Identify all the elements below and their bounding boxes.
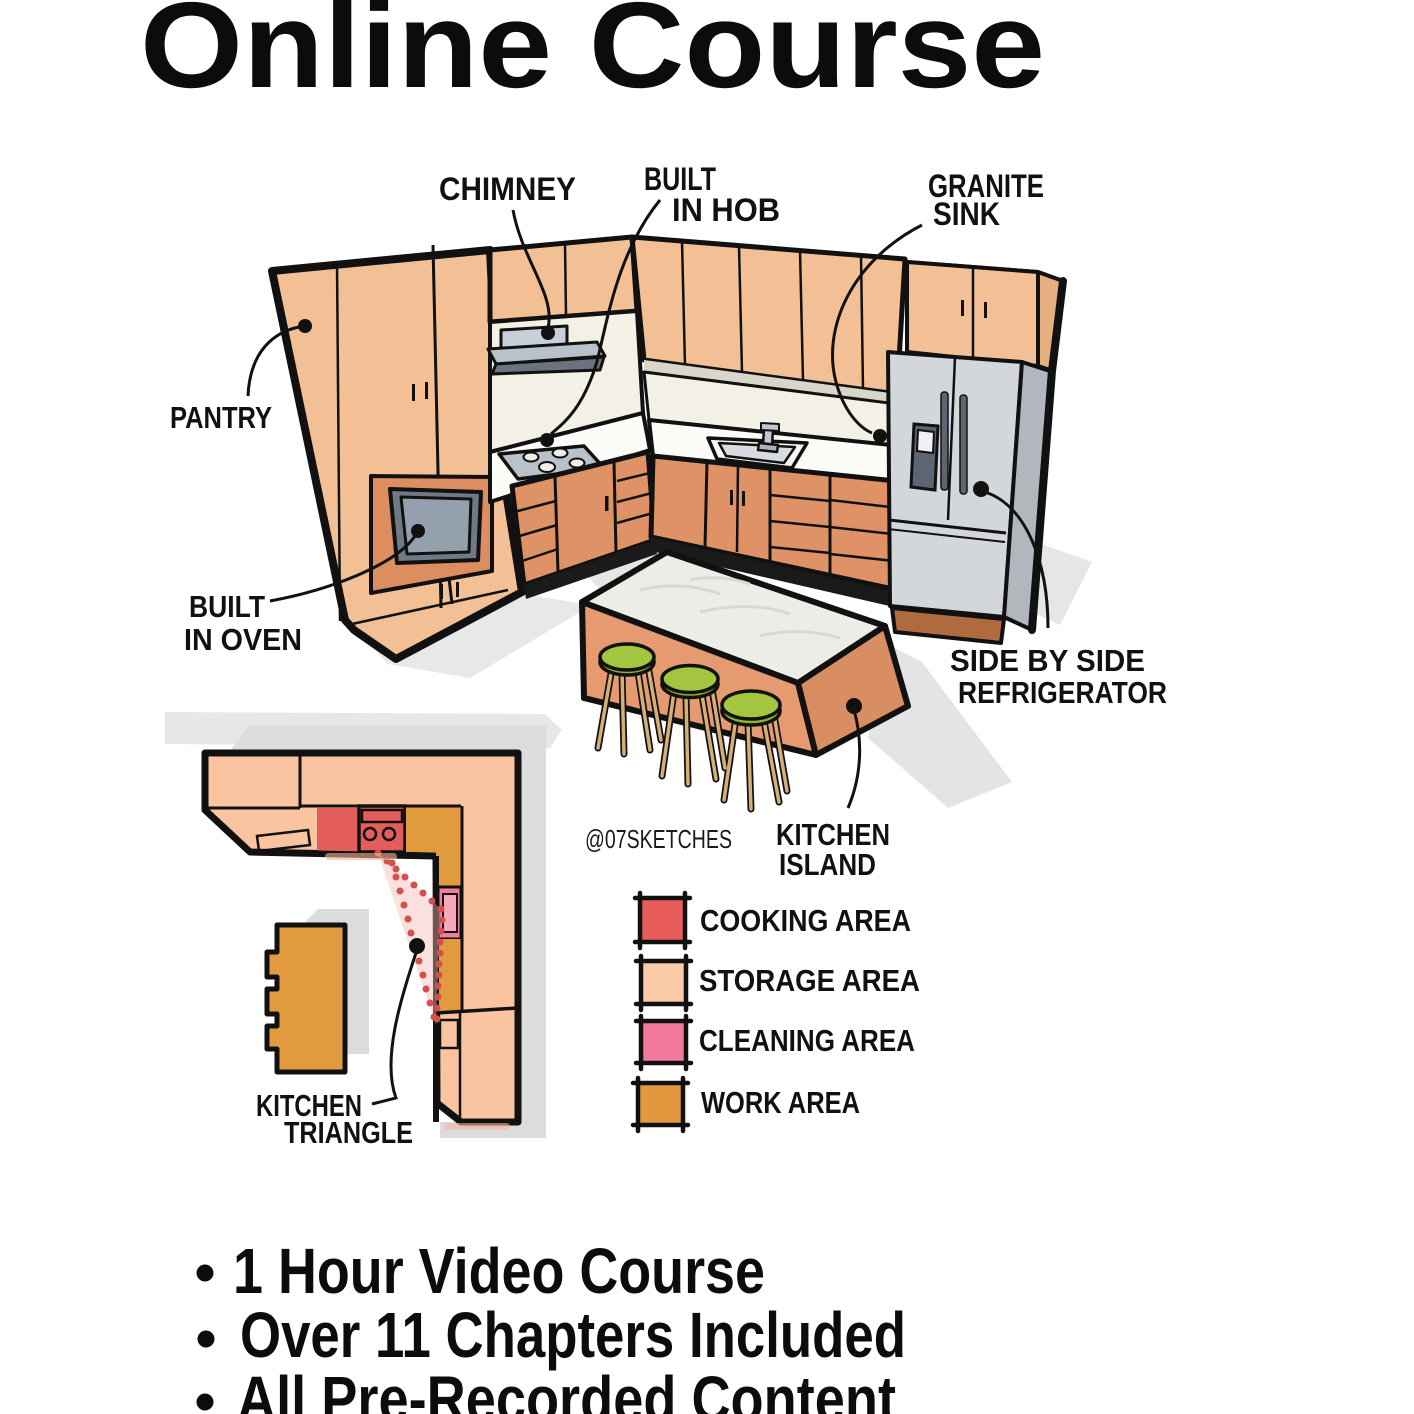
svg-text:CLEANING AREA: CLEANING AREA [699,1023,915,1058]
svg-text:@07SKETCHES: @07SKETCHES [585,824,732,854]
svg-text:SIDE BY SIDE: SIDE BY SIDE [950,643,1145,678]
svg-text:ISLAND: ISLAND [779,847,876,882]
svg-text:Over 11 Chapters Included: Over 11 Chapters Included [240,1299,906,1371]
svg-text:CHIMNEY: CHIMNEY [439,171,576,207]
svg-text:SINK: SINK [933,196,1000,232]
svg-text:REFRIGERATOR: REFRIGERATOR [958,675,1167,710]
svg-text:BUILT: BUILT [189,589,265,624]
svg-text:IN HOB: IN HOB [672,192,780,228]
svg-text:All Pre-Recorded Content: All Pre-Recorded Content [237,1363,896,1414]
svg-text:Online Course: Online Course [140,0,1045,113]
svg-text:WORK AREA: WORK AREA [701,1085,860,1120]
svg-text:IN OVEN: IN OVEN [184,622,302,657]
svg-text:PANTRY: PANTRY [170,400,272,435]
svg-text:TRIANGLE: TRIANGLE [284,1115,413,1150]
svg-text:STORAGE AREA: STORAGE AREA [699,963,920,998]
svg-text:1 Hour Video Course: 1 Hour Video Course [233,1235,765,1307]
svg-text:COOKING AREA: COOKING AREA [700,903,911,938]
